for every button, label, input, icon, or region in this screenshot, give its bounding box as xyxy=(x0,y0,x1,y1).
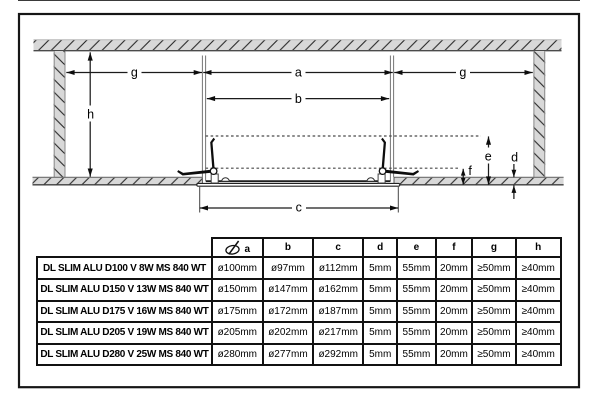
svg-text:a: a xyxy=(295,66,302,80)
svg-text:g: g xyxy=(459,66,466,80)
svg-text:g: g xyxy=(131,66,138,80)
svg-text:b: b xyxy=(295,92,302,106)
svg-text:h: h xyxy=(87,108,94,122)
svg-text:d: d xyxy=(511,150,518,164)
svg-text:c: c xyxy=(296,200,302,214)
svg-text:e: e xyxy=(485,149,492,163)
svg-text:f: f xyxy=(468,164,472,178)
